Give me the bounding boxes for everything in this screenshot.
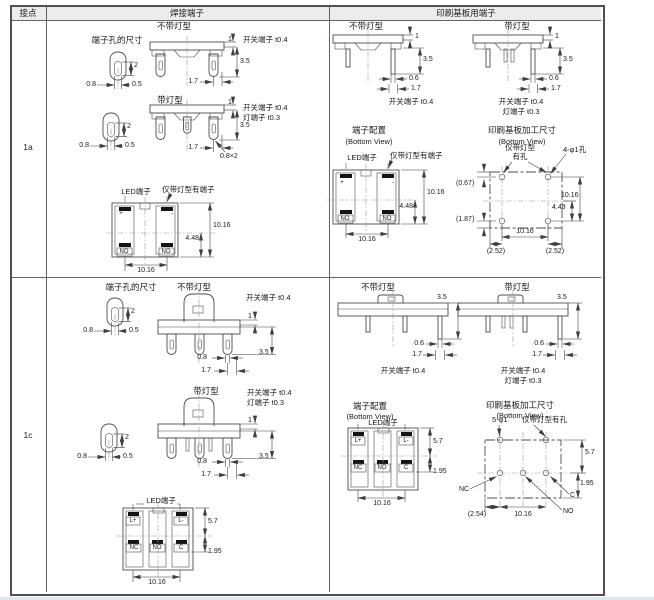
dim-label: 0.6 <box>414 340 424 348</box>
title-no-lamp: 不带灯型 <box>349 22 383 32</box>
drawing-1a-pcb-nolamp-front <box>333 28 424 93</box>
dim-label: 5.7 <box>208 518 218 526</box>
dim-label: 3.5 <box>240 122 250 130</box>
title-hole-size: 端子孔的尺寸 <box>105 283 156 293</box>
header-contact: 接点 <box>19 9 36 19</box>
title-no-lamp: 不带灯型 <box>361 283 395 293</box>
dim-label: 1.7 <box>201 367 211 375</box>
dim-label: 10.16 <box>213 222 231 230</box>
dim-label: 1.95 <box>208 548 222 556</box>
dim-label: 0.5 <box>132 81 142 89</box>
dim-label: 2 <box>125 434 129 442</box>
dim-label: 1.7 <box>551 85 561 93</box>
note-lamp-terminal: 灯端子 t0.3 <box>247 399 284 408</box>
drawing-1a-pcb-lamp-front <box>473 28 564 93</box>
dim-label: (1.87) <box>456 216 474 224</box>
row-label-1a: 1a <box>23 143 32 153</box>
header-solder-terminal: 焊接端子 <box>170 9 204 19</box>
note-five-holes: 5-φ1 <box>492 416 508 425</box>
dim-label: 10.16 <box>561 192 579 200</box>
dim-label: 1.7 <box>411 85 421 93</box>
polarity-minus-label: - <box>171 211 173 218</box>
dim-label: 5.7 <box>585 449 595 457</box>
dim-label: (0.67) <box>456 180 474 188</box>
title-lamp: 带灯型 <box>504 283 530 293</box>
drawing-1c-solder-bottom-view <box>116 502 212 582</box>
dim-label: 1.7 <box>412 351 422 359</box>
terminal-nc-label: NC <box>130 545 139 552</box>
dim-label: 1 <box>248 417 252 425</box>
terminal-c-label: C <box>404 465 408 472</box>
drawing-1c-hole-detail-nolamp <box>94 298 131 336</box>
dim-label: (2.52) <box>546 248 564 256</box>
dim-label: 0.8 <box>79 142 89 150</box>
dim-label: 10.16 <box>514 511 532 519</box>
dim-label: 1 <box>228 36 232 44</box>
drawing-1c-pcb-hole-layout <box>470 425 586 512</box>
title-terminal-config: 端子配置 <box>353 402 387 412</box>
note-lamp-only-hole: 仅带灯型有孔 <box>522 416 567 425</box>
dim-label: 10.16 <box>358 236 376 244</box>
note-lamp-only-terminal: 仅带灯型有端子 <box>162 186 215 195</box>
title-no-lamp: 不带灯型 <box>157 22 191 32</box>
dim-label: 4.48 <box>552 204 566 212</box>
terminal-nc-label: NC <box>459 486 469 494</box>
dim-label: 0.8 <box>197 354 207 362</box>
dim-label: 1.95 <box>433 468 447 476</box>
note-led-terminal: LED端子 <box>146 497 176 506</box>
dim-label: 2 <box>127 123 131 131</box>
row-label-1c: 1c <box>24 431 33 441</box>
dim-label: 2 <box>134 62 138 70</box>
dim-label: 0.5 <box>129 327 139 335</box>
drawing-1c-pcb-bottom-view <box>341 422 437 502</box>
terminal-lplus-label: L+ <box>355 438 362 445</box>
drawing-1c-hole-detail-lamp <box>88 424 125 462</box>
dim-label: 0.8 <box>83 327 93 335</box>
title-hole-size: 端子孔的尺寸 <box>91 36 142 46</box>
dim-label: (2.52) <box>487 248 505 256</box>
dim-label: 0.5 <box>125 142 135 150</box>
drawing-1a-hole-detail-lamp <box>90 113 127 151</box>
note-lamp-terminal: 灯端子 t0.3 <box>504 377 541 386</box>
terminal-no-label: NO <box>120 249 129 256</box>
dim-label: 1 <box>248 313 252 321</box>
note-lamp-only-terminal: 仅带灯型有端子 <box>390 152 443 161</box>
terminal-nc-label: NC <box>354 465 363 472</box>
dim-label: 3.5 <box>423 56 433 64</box>
terminal-lplus-label: L+ <box>130 518 137 525</box>
note-four-holes: 4-φ1孔 <box>563 146 586 155</box>
terminal-lminus-label: L- <box>178 518 183 525</box>
dim-label: 3.5 <box>240 58 250 66</box>
dim-label: 10.16 <box>427 189 445 197</box>
note-switch-terminal: 开关端子 t0.4 <box>246 294 291 303</box>
dim-label: 1.7 <box>201 471 211 479</box>
title-pcb-dims: 印刷基板加工尺寸 <box>488 126 556 136</box>
dim-label: 3.5 <box>259 349 269 357</box>
dim-label: 0.8 <box>197 458 207 466</box>
dim-label: 0.8 <box>77 453 87 461</box>
note-led-terminal: LED端子 <box>347 154 377 163</box>
dim-label: 1.7 <box>532 351 542 359</box>
dim-label: 1.95 <box>580 480 594 488</box>
terminal-lminus-label: L- <box>403 438 408 445</box>
note-switch-terminal: 开关端子 t0.4 <box>501 367 546 376</box>
note-switch-terminal: 开关端子 t0.4 <box>243 104 288 113</box>
note-switch-terminal: 开关端子 t0.4 <box>243 36 288 45</box>
polarity-plus-label: + <box>340 180 344 187</box>
dim-label: 4.48 <box>185 235 199 243</box>
dim-label: 0.8 <box>86 81 96 89</box>
dim-label: 0.6 <box>409 75 419 83</box>
terminal-no-label: NO <box>153 545 162 552</box>
drawing-1a-hole-detail-nolamp <box>97 52 134 90</box>
title-lamp: 带灯型 <box>157 96 183 106</box>
dim-label: 4.48 <box>399 203 413 211</box>
title-lamp: 带灯型 <box>504 22 530 32</box>
terminal-no-label: NO <box>162 249 171 256</box>
dim-label: 0.6 <box>534 340 544 348</box>
polarity-minus-label: - <box>392 180 394 187</box>
title-terminal-config: 端子配置 <box>352 126 386 136</box>
dim-label: 10.16 <box>148 579 166 587</box>
dim-label: (2.54) <box>468 511 486 519</box>
title-pcb-dims: 印刷基板加工尺寸 <box>486 401 554 411</box>
title-lamp: 带灯型 <box>193 387 219 397</box>
note-lamp-only-hole-line2: 有孔 <box>513 153 528 162</box>
note-led-terminal: LED端子 <box>121 188 151 197</box>
drawing-1a-solder-bottom-view <box>106 193 218 271</box>
dim-label: 2 <box>131 308 135 316</box>
dim-label: 5.7 <box>433 438 443 446</box>
dim-label: 0.6 <box>549 75 559 83</box>
dim-label: 10.16 <box>137 267 155 275</box>
dim-label: 1 <box>415 33 419 41</box>
polarity-plus-label: + <box>119 211 123 218</box>
dim-label: 3.5 <box>563 56 573 64</box>
dim-label: 1 <box>555 33 559 41</box>
terminal-c-label: C <box>179 545 183 552</box>
header-pcb-terminal: 印刷基板用端子 <box>436 9 496 19</box>
dim-label: 1.7 <box>188 78 198 86</box>
title-no-lamp: 不带灯型 <box>177 283 211 293</box>
note-lamp-terminal: 灯端子 t0.3 <box>502 108 539 117</box>
dim-label: 0.5 <box>123 453 133 461</box>
note-led-terminal: LED端子 <box>368 419 398 428</box>
terminal-c-label: C <box>570 492 575 500</box>
note-switch-terminal: 开关端子 t0.4 <box>499 98 544 107</box>
dim-label: 10.16 <box>373 500 391 508</box>
note-switch-terminal: 开关端子 t0.4 <box>381 367 426 376</box>
terminal-no-label: NO <box>378 465 387 472</box>
dim-label: 1.7 <box>188 144 198 152</box>
drawing-1a-pcb-bottom-view <box>327 159 428 238</box>
terminal-no-label: NO <box>341 216 350 223</box>
note-switch-terminal: 开关端子 t0.4 <box>389 98 434 107</box>
dim-label: 3.5 <box>557 294 567 302</box>
dim-label: 1 <box>228 99 232 107</box>
note-switch-terminal: 开关端子 t0.4 <box>247 389 292 398</box>
terminal-no-label: NO <box>563 508 574 516</box>
dim-label: 0.8×2 <box>220 153 238 161</box>
dim-label: 10.16 <box>516 228 534 236</box>
terminal-no-label: NO <box>383 216 392 223</box>
dim-label: 3.5 <box>437 294 447 302</box>
dim-label: 3.5 <box>259 453 269 461</box>
datasheet-page: 接点 焊接端子 印刷基板用端子 1a 1c 不带灯型 端子孔的尺寸 2 0.8 … <box>0 0 654 600</box>
title-bottom-view: (Bottom View) <box>346 138 393 147</box>
